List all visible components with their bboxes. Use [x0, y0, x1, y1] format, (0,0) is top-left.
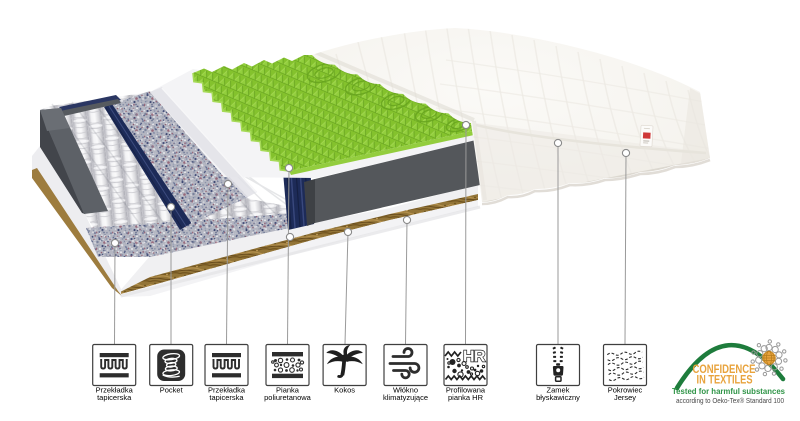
svg-text:tapicerska: tapicerska — [209, 393, 244, 402]
svg-text:Jersey: Jersey — [614, 393, 636, 402]
svg-text:pianka HR: pianka HR — [448, 393, 484, 402]
svg-text:błyskawiczny: błyskawiczny — [536, 393, 580, 402]
svg-text:Tested for harmful substances: Tested for harmful substances — [672, 386, 785, 396]
svg-text:tapicerska: tapicerska — [97, 393, 132, 402]
svg-text:according to Oeko-Tex® Standar: according to Oeko-Tex® Standard 100 — [676, 396, 784, 405]
svg-text:Kokos: Kokos — [334, 385, 355, 394]
svg-text:IN TEXTILES: IN TEXTILES — [697, 373, 753, 387]
svg-text:poliuretanowa: poliuretanowa — [264, 393, 312, 402]
svg-text:klimatyzujące: klimatyzujące — [383, 393, 428, 402]
svg-text:Pocket: Pocket — [160, 385, 184, 394]
